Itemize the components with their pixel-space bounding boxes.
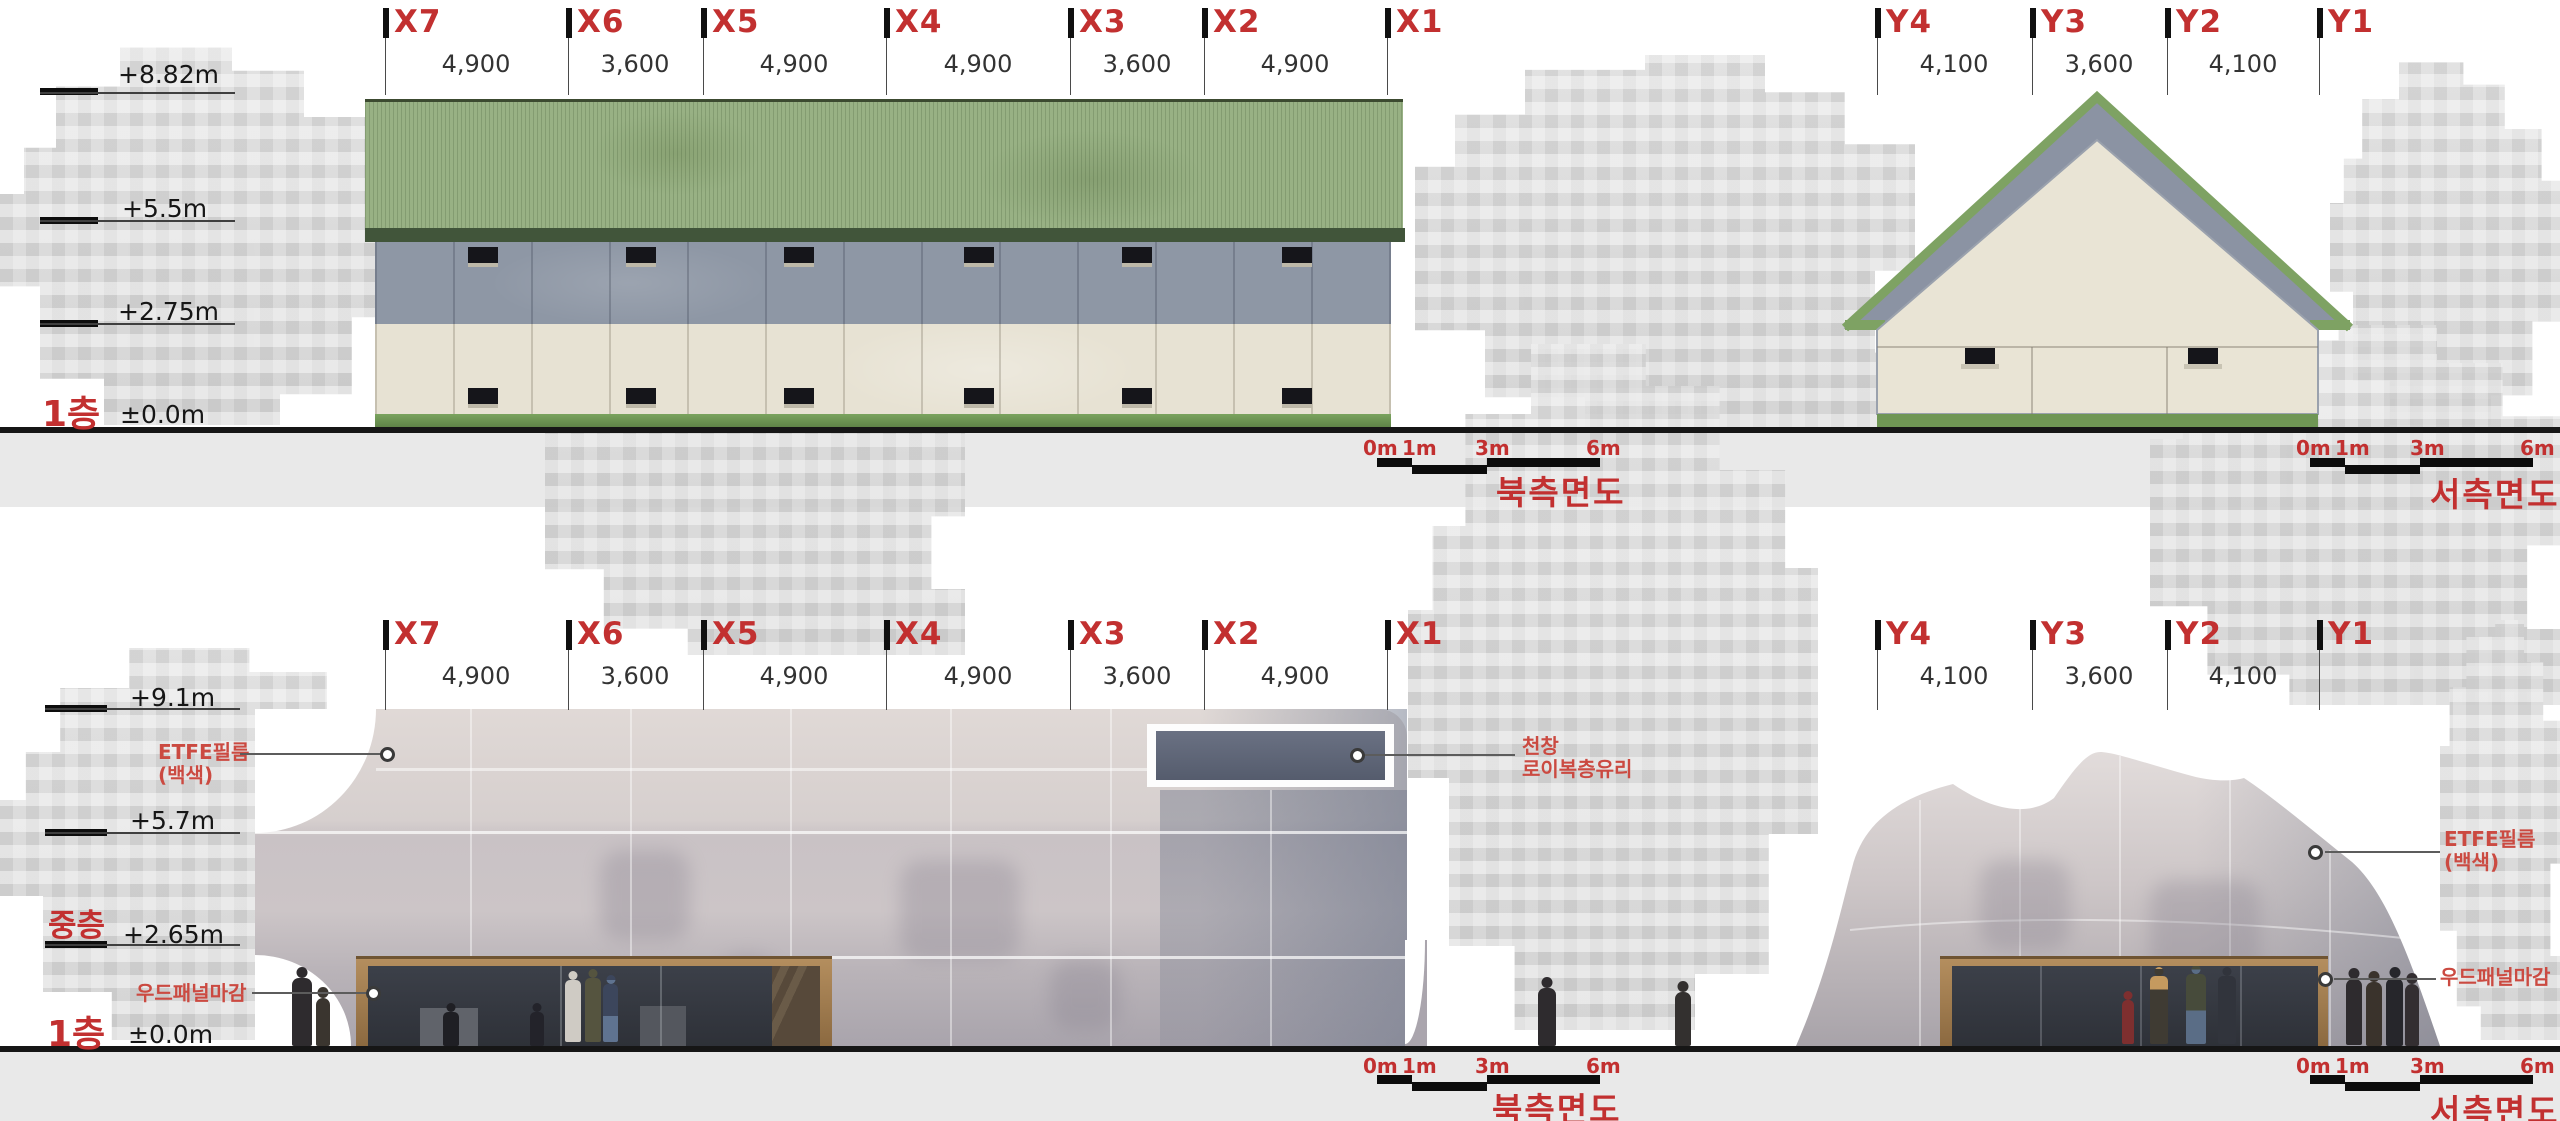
grid-line-x5: [703, 38, 704, 95]
grid-line-y3: [2032, 650, 2033, 710]
pedestrian: [2405, 984, 2419, 1046]
scalebar-segment: [1377, 458, 1412, 467]
fabric-seam: [376, 768, 1147, 771]
grid-label-y4: Y4: [1886, 4, 1932, 40]
grid-tick-x6: [566, 620, 572, 650]
floor-label-1f-bottom: 1층: [47, 1005, 105, 1057]
interior-shadow: [900, 860, 1020, 960]
grid-tick-x4: [884, 620, 890, 650]
grid-label-x3: X3: [1079, 616, 1126, 652]
dim-y2-y1: 4,100: [2195, 662, 2291, 690]
dim-x6-x5: 3,600: [587, 50, 683, 78]
scalebar-1m: 1m: [2335, 436, 2370, 460]
leader-line: [240, 753, 382, 755]
grid-tick-x7: [383, 620, 389, 650]
interior-stair: [772, 966, 820, 1046]
grid-tick-x4: [884, 8, 890, 38]
grid-line-y3: [2032, 38, 2033, 95]
dim-x6-x5: 3,600: [587, 662, 683, 690]
leader-dot: [2318, 972, 2333, 987]
grid-line-x6: [568, 38, 569, 95]
scalebar-6m: 6m: [1586, 436, 1621, 460]
annotation-line1: ETFE필름: [158, 741, 249, 764]
vent: [784, 388, 814, 408]
vent: [468, 247, 498, 267]
grid-label-x5: X5: [712, 616, 759, 652]
vent: [468, 388, 498, 408]
level-5-7: +5.7m: [130, 806, 215, 835]
grid-label-x2: X2: [1213, 616, 1260, 652]
fabric-seam: [470, 709, 472, 956]
floor-label-1f-top: 1층: [42, 385, 100, 437]
annotation-line1: 천창: [1522, 735, 1632, 758]
vent: [1282, 388, 1312, 408]
grid-label-x6: X6: [577, 4, 624, 40]
vent: [626, 247, 656, 267]
grid-line-y4: [1877, 38, 1878, 95]
interior-person: [2218, 976, 2236, 1044]
scalebar-0m: 0m: [1363, 436, 1398, 460]
level-line: [45, 832, 240, 834]
fabric-seam: [830, 956, 1407, 959]
dim-x2-x1: 4,900: [1247, 662, 1343, 690]
scalebar-segment: [1412, 465, 1487, 474]
grid-label-y1: Y1: [2328, 616, 2374, 652]
vent: [1122, 388, 1152, 408]
grid-line-x3: [1070, 38, 1071, 95]
north-wall-upper-slate: [375, 242, 1391, 324]
north-wall-lower-cream: [375, 324, 1391, 414]
fabric-shading-lower-right: [1160, 790, 1407, 1046]
leader-dot: [1350, 748, 1365, 763]
grid-line-x7: [385, 650, 386, 710]
ground-line-top: [0, 427, 2560, 433]
scalebar-segment: [2345, 465, 2420, 474]
dim-y3-y2: 3,600: [2051, 50, 2147, 78]
grid-label-x4: X4: [895, 4, 942, 40]
pedestrian: [2346, 979, 2362, 1045]
scalebar-3m: 3m: [1475, 436, 1510, 460]
leader-dot: [380, 747, 395, 762]
vent: [964, 388, 994, 408]
grid-label-x3: X3: [1079, 4, 1126, 40]
pedestrian: [292, 978, 312, 1046]
grid-tick-x2: [1202, 620, 1208, 650]
door-mullion: [2240, 966, 2242, 1046]
title-west-elevation-bottom: 서측면도: [2430, 1085, 2559, 1121]
grid-tick-x6: [566, 8, 572, 38]
grid-label-x7: X7: [394, 4, 441, 40]
dim-x7-x6: 4,900: [428, 662, 524, 690]
grid-tick-x1: [1385, 620, 1391, 650]
dim-x4-x3: 4,900: [930, 50, 1026, 78]
grid-line-y2: [2167, 650, 2168, 710]
dim-x4-x3: 4,900: [930, 662, 1026, 690]
grid-line-y4: [1877, 650, 1878, 710]
annotation-etfe-film: ETFE필름 (백색): [158, 741, 249, 787]
interior-person: [2150, 976, 2168, 1044]
ground-line-bottom: [0, 1046, 2560, 1052]
dim-x2-x1: 4,900: [1247, 50, 1343, 78]
annotation-skylight: 천창 로이복층유리: [1522, 735, 1632, 781]
grid-line-x1: [1387, 38, 1388, 95]
grid-tick-y1: [2317, 620, 2323, 650]
grid-label-y3: Y3: [2041, 4, 2087, 40]
grid-tick-y2: [2165, 620, 2171, 650]
grid-tick-x3: [1068, 620, 1074, 650]
level-line: [40, 323, 235, 325]
dim-y4-y3: 4,100: [1906, 662, 2002, 690]
scalebar-segment: [2420, 1075, 2533, 1084]
fabric-seam: [1110, 709, 1112, 1046]
west-gable-building: [1770, 60, 2410, 440]
grid-line-x7: [385, 38, 386, 95]
grid-line-y1: [2319, 38, 2320, 95]
title-north-elevation-top: 북측면도: [1496, 466, 1625, 514]
scalebar-1m: 1m: [1402, 436, 1437, 460]
scalebar-segment: [2420, 458, 2533, 467]
annotation-wood-panel-west: 우드패널마감: [2440, 966, 2550, 989]
grid-label-x4: X4: [895, 616, 942, 652]
grid-tick-y3: [2030, 8, 2036, 38]
vent: [1122, 247, 1152, 267]
scalebar-segment: [2345, 1082, 2420, 1091]
level-0: ±0.0m: [128, 1020, 213, 1049]
grid-label-x5: X5: [712, 4, 759, 40]
annotation-line2: 로이복층유리: [1522, 758, 1632, 781]
floor-label-mezzanine: 중층: [48, 900, 105, 945]
grass-strip: [375, 414, 1391, 427]
grid-label-y3: Y3: [2041, 616, 2087, 652]
level-line: [40, 92, 235, 94]
dim-x3-x2: 3,600: [1089, 50, 1185, 78]
grid-label-y4: Y4: [1886, 616, 1932, 652]
display-counter: [640, 1006, 686, 1046]
dim-y3-y2: 3,600: [2051, 662, 2147, 690]
title-west-elevation-top: 서측면도: [2430, 468, 2559, 516]
grid-line-x6: [568, 650, 569, 710]
title-north-elevation-bottom: 북측면도: [1492, 1083, 1621, 1121]
pedestrian: [2386, 978, 2403, 1046]
leader-line: [252, 992, 370, 994]
grid-tick-x2: [1202, 8, 1208, 38]
ground-strip-bottom: [0, 1052, 2560, 1121]
grid-tick-y1: [2317, 8, 2323, 38]
dim-y2-y1: 4,100: [2195, 50, 2291, 78]
level-8-82: +8.82m: [118, 60, 219, 89]
fabric-seam: [630, 709, 632, 956]
leader-line: [2334, 978, 2436, 980]
grid-label-y1: Y1: [2328, 4, 2374, 40]
grid-tick-x3: [1068, 8, 1074, 38]
level-5-5: +5.5m: [122, 194, 207, 223]
scalebar-6m: 6m: [2520, 436, 2555, 460]
storefront-glass-west: [1952, 966, 2318, 1046]
door-mullion: [2040, 966, 2042, 1046]
level-0: ±0.0m: [120, 400, 205, 429]
annotation-etfe-film-west: ETFE필름 (백색): [2444, 828, 2535, 874]
fabric-seam: [1270, 790, 1272, 1046]
grid-label-x1: X1: [1396, 616, 1443, 652]
grid-label-x2: X2: [1213, 4, 1260, 40]
scalebar-segment: [2310, 1075, 2345, 1084]
grid-line-x2: [1204, 38, 1205, 95]
grid-label-y2: Y2: [2176, 4, 2222, 40]
pedestrian: [1675, 992, 1691, 1046]
grid-line-x4: [886, 650, 887, 710]
scalebar-segment: [2310, 458, 2345, 467]
grid-label-x1: X1: [1396, 4, 1443, 40]
grid-line-x1: [1387, 650, 1388, 710]
grid-line-x3: [1070, 650, 1071, 710]
leader-line: [2325, 851, 2440, 853]
north-roof-green: [365, 99, 1403, 231]
leader-line: [1362, 754, 1515, 756]
annotation-line2: (백색): [158, 764, 249, 787]
dim-x3-x2: 3,600: [1089, 662, 1185, 690]
storefront-glass: [368, 966, 820, 1046]
grid-tick-x1: [1385, 8, 1391, 38]
scalebar-segment: [1412, 1082, 1487, 1091]
north-eave-band: [365, 228, 1405, 242]
grid-tick-y4: [1875, 8, 1881, 38]
vent: [784, 247, 814, 267]
dim-y4-y3: 4,100: [1906, 50, 2002, 78]
mannequin: [530, 1012, 544, 1046]
dim-x5-x4: 4,900: [746, 662, 842, 690]
grid-line-x5: [703, 650, 704, 710]
level-2-75: +2.75m: [118, 297, 219, 326]
door-mullion: [660, 966, 662, 1046]
grid-tick-y2: [2165, 8, 2171, 38]
annotation-line2: (백색): [2444, 851, 2535, 874]
dim-x5-x4: 4,900: [746, 50, 842, 78]
pedestrian: [316, 998, 330, 1046]
interior-shadow: [1980, 860, 2070, 950]
vent: [626, 388, 656, 408]
grid-tick-y3: [2030, 620, 2036, 650]
annotation-wood-panel: 우드패널마감: [136, 982, 246, 1005]
level-line: [45, 708, 240, 710]
grid-tick-x7: [383, 8, 389, 38]
fabric-seam: [950, 709, 952, 1046]
grid-tick-x5: [701, 620, 707, 650]
grid-line-y2: [2167, 38, 2168, 95]
grid-label-y2: Y2: [2176, 616, 2222, 652]
grid-line-x2: [1204, 650, 1205, 710]
interior-person: [2186, 974, 2206, 1044]
tree: [0, 40, 400, 425]
elevation-drawing-sheet: X7 X6 X5 X4 X3 X2 X1 4,900 3,600 4,900 4…: [0, 0, 2560, 1121]
leader-dot: [2308, 845, 2323, 860]
interior-person: [2122, 1000, 2134, 1044]
grid-label-x7: X7: [394, 616, 441, 652]
fabric-seam: [255, 831, 1407, 834]
mannequin: [443, 1012, 459, 1046]
grid-tick-y4: [1875, 620, 1881, 650]
interior-person: [603, 984, 618, 1042]
scalebar-segment: [1377, 1075, 1412, 1084]
grid-tick-x5: [701, 8, 707, 38]
vent: [1282, 247, 1312, 267]
door-mullion: [2140, 966, 2142, 1046]
interior-shadow: [600, 850, 690, 940]
pedestrian: [2366, 982, 2382, 1046]
grid-line-x4: [886, 38, 887, 95]
interior-person: [585, 978, 601, 1042]
dim-x7-x6: 4,900: [428, 50, 524, 78]
door-mullion: [560, 966, 562, 1046]
level-line: [45, 944, 240, 946]
scalebar-3m: 3m: [2410, 436, 2445, 460]
grid-line-y1: [2319, 650, 2320, 710]
scalebar-0m: 0m: [2296, 436, 2331, 460]
annotation-line1: ETFE필름: [2444, 828, 2535, 851]
grid-label-x6: X6: [577, 616, 624, 652]
vent: [964, 247, 994, 267]
leader-dot: [366, 986, 381, 1001]
level-line: [40, 220, 235, 222]
interior-person: [565, 980, 581, 1042]
pedestrian: [1538, 988, 1556, 1046]
